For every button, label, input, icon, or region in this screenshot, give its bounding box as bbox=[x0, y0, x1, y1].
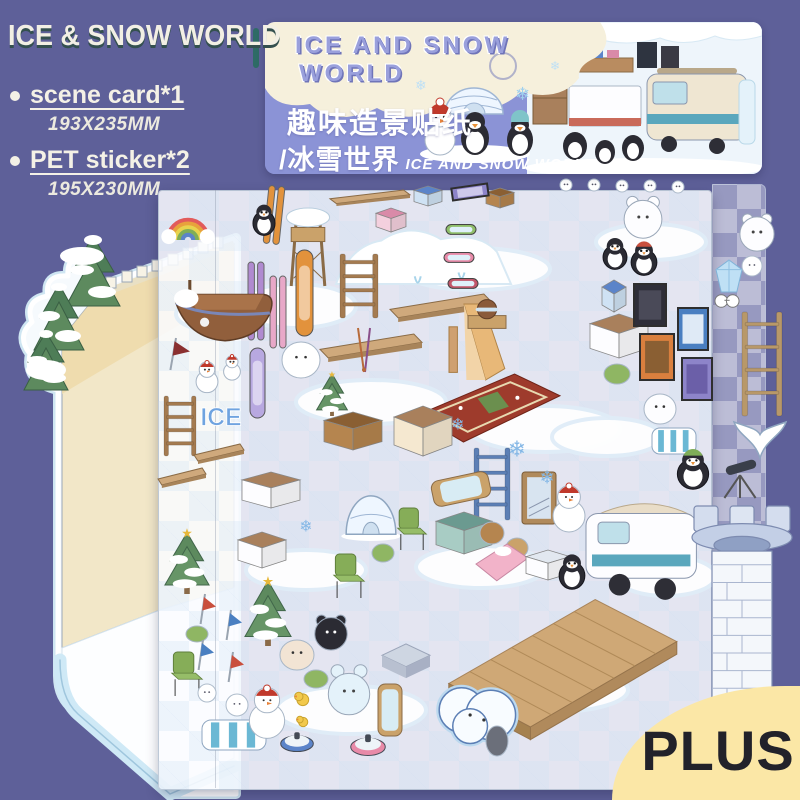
bullet-dot-icon bbox=[10, 156, 20, 166]
spec-item-size: 193X235MM bbox=[48, 114, 264, 136]
product-image: ★ICE★★❄❄❄❄ bbox=[0, 0, 800, 800]
spec-item-size: 195X230MM bbox=[48, 179, 264, 201]
snowflake-icon: ❄ bbox=[550, 59, 560, 73]
header-cn-subtitle: /冰雪世界 bbox=[279, 145, 400, 174]
spec-list: scene card*1 193X235MM PET sticker*2 195… bbox=[8, 81, 264, 201]
header-bubble-title-line1: ICE AND SNOW bbox=[295, 32, 510, 60]
plus-badge-label: PLUS bbox=[641, 718, 794, 783]
snow-cap bbox=[60, 247, 104, 265]
header-cn-title: 趣味造景贴纸 bbox=[287, 100, 473, 142]
bullet-dot-icon bbox=[10, 91, 20, 101]
spec-item-label: scene card*1 bbox=[30, 81, 184, 109]
spec-item-scene-card: scene card*1 bbox=[30, 81, 264, 110]
snowflake-icon: ❄ bbox=[515, 84, 530, 104]
header-en-subtitle: ICE AND SNOW WORLD bbox=[406, 156, 597, 173]
snowflake-icon: ❄ bbox=[415, 77, 427, 93]
spec-item-pet-sticker: PET sticker*2 bbox=[30, 146, 264, 175]
snowy-tree bbox=[66, 235, 120, 306]
spec-item-label: PET sticker*2 bbox=[30, 146, 190, 174]
header-card: ❄ ❄ ❄ ICE AND SNOW WORLD 趣味造景贴纸 /冰雪世界ICE… bbox=[265, 22, 762, 174]
header-bubble-title-line2: WORLD bbox=[299, 60, 405, 88]
title-block: ICE & SNOW WORLD scene card*1 193X235MM … bbox=[8, 20, 264, 203]
sticker-sheet-front bbox=[158, 190, 712, 790]
page-title: ICE & SNOW WORLD bbox=[8, 20, 246, 53]
sticker-sheet-seam bbox=[215, 190, 216, 788]
snow-cap bbox=[26, 360, 66, 380]
